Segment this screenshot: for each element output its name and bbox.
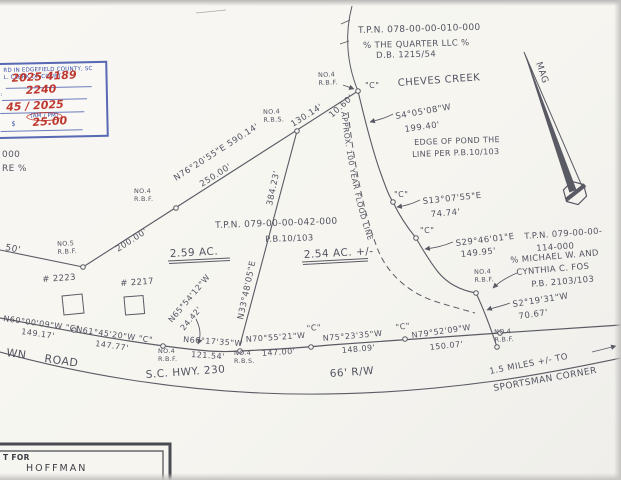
stamp-cut-label: ME: — [0, 92, 3, 98]
distance-s13: 74.74' — [430, 207, 460, 220]
bearing-n70: N70°55'21"W — [246, 331, 306, 344]
distance-s29: 149.95' — [460, 246, 496, 260]
road-name: ROAD — [44, 352, 80, 370]
cheves-creek-label: CHEVES CREEK — [397, 72, 480, 89]
distance-n66: 121.54' — [191, 350, 225, 361]
deed-north-parcel: D.B. 1215/54 — [376, 49, 436, 62]
west-parcel-cut-text-2: RE % — [2, 164, 27, 176]
creek-boundary-line — [358, 91, 476, 293]
north-arrow-needle-light — [524, 52, 583, 190]
bearing-n66: N66°17'35"W — [183, 335, 243, 348]
point-c-label: "C" — [306, 323, 321, 333]
marker-label-rbf: NO.4 R.B.F. — [134, 188, 153, 203]
distance-n79: 150.07' — [429, 340, 463, 352]
bearing-s13: S13°07'55"E — [422, 191, 482, 207]
west-distance-cut: 50' — [4, 243, 21, 256]
distance-s2: 70.67' — [518, 308, 549, 322]
leader-arrow — [493, 273, 517, 288]
plat-book-subject-parcel: P.B.10/103 — [265, 233, 314, 246]
bearing-s4: S4°05'08"W — [395, 102, 452, 122]
stamp-time-value: 2240 — [25, 82, 56, 97]
marker-label-rbs: NO.4 R.B.S. — [263, 108, 284, 124]
title-block-owner-name: HOFFMAN — [26, 463, 87, 475]
house-number-2217: # 2217 — [120, 277, 154, 290]
point-c-label: "C" — [395, 321, 410, 332]
survey-marker — [81, 265, 86, 270]
survey-marker — [174, 206, 179, 211]
marker-label-rbf: NO.4 R.B.F. — [158, 348, 177, 363]
stamp-fee-value: 25.00 — [32, 114, 67, 129]
point-c-label: "C" — [420, 226, 434, 235]
stamp-fee-label: $ — [11, 120, 15, 128]
leader-arrow — [343, 85, 354, 89]
point-c-label: "C" — [365, 81, 379, 90]
leader-arrow — [487, 303, 510, 310]
plat-scan: APPROX. 100 YEAR FLOOD LINE — [0, 0, 621, 480]
leader-arrow — [370, 114, 393, 122]
survey-marker — [414, 236, 419, 241]
survey-marker — [295, 129, 300, 134]
house-number-2223: # 2223 — [42, 273, 76, 286]
acreage-259: 2.59 AC. — [170, 245, 219, 260]
marker-label-rbf: NO.4 R.B.F. — [318, 71, 338, 87]
flood-line-label: APPROX. 100 YEAR FLOOD LINE — [339, 111, 375, 242]
distance-n70: 147.00' — [262, 347, 296, 358]
bearing-n75: N75°23'35"W — [322, 329, 382, 343]
interior-distance: 384.23' — [265, 170, 282, 207]
house-2217-outline — [124, 296, 145, 316]
stamp-rule — [1, 129, 83, 132]
survey-marker — [403, 337, 408, 342]
marker-label-no5-rbf: NO.5 R.B.F. — [57, 240, 77, 256]
highway-label: S.C. HWY. 230 — [145, 363, 225, 381]
right-of-way-label: 66' R/W — [329, 365, 374, 380]
marker-label-rbs: NO.4 R.B.S. — [234, 350, 255, 365]
segment-200: 200.00' — [114, 227, 149, 255]
survey-marker — [356, 89, 361, 94]
recording-stamp: RD IN EDGEFIELD COUNTY, SC L. CLERK OF C… — [0, 61, 109, 139]
north-arrow-icon — [524, 52, 587, 205]
bearing-s2: S2°19'31"W — [512, 291, 569, 310]
marker-label-rbf: NO.4 R.B.F. — [494, 328, 514, 344]
title-block-plat-for: T FOR — [3, 453, 30, 463]
survey-marker — [391, 200, 396, 205]
leader-arrow — [425, 242, 453, 249]
distance-n61: 147.77' — [95, 339, 130, 353]
point-c-label: "C" — [394, 190, 408, 199]
west-parcel-cut-text-1: 000 — [2, 150, 20, 162]
survey-marker — [495, 345, 500, 350]
scan-artifact-line — [196, 10, 226, 13]
leader-arrow — [397, 200, 420, 207]
house-2223-outline — [62, 294, 84, 315]
distance-n75: 148.09' — [341, 343, 375, 355]
marker-label-rbf: NO.4 R.B.F. — [474, 268, 494, 284]
mag-north-label: MAG — [533, 61, 550, 85]
creek-upper-line — [348, 6, 358, 91]
distance-s4: 199.40' — [404, 120, 441, 135]
road-name-cut: WN — [6, 346, 28, 362]
flood-line-label-text: APPROX. 100 YEAR FLOOD LINE — [339, 111, 375, 242]
survey-marker — [474, 291, 479, 296]
miles-direction-arrow — [592, 346, 616, 352]
bearing-s29: S29°46'01"E — [455, 232, 515, 249]
survey-marker — [309, 345, 314, 350]
